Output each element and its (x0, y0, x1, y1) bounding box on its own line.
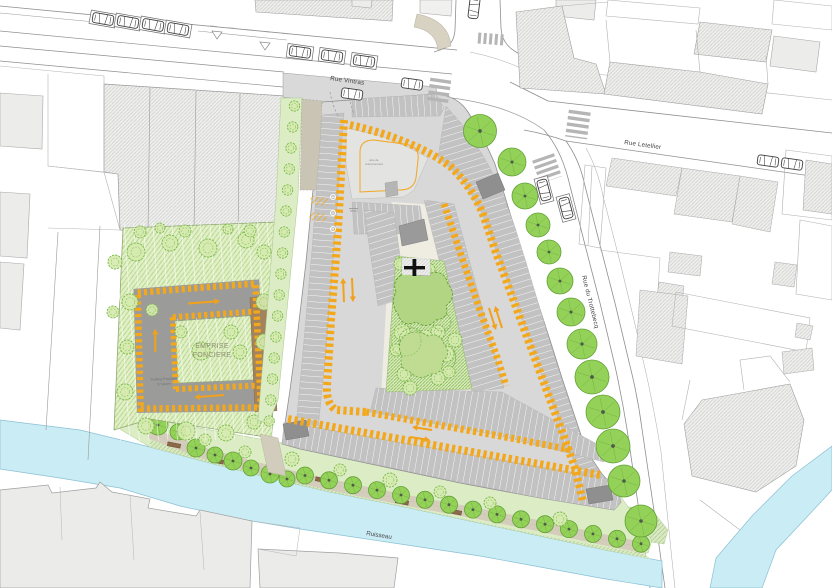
svg-text:EMPRISE: EMPRISE (195, 343, 229, 350)
svg-text:57 places: 57 places (157, 382, 171, 387)
svg-text:retournement: retournement (365, 162, 383, 166)
svg-text:FONCIERE: FONCIERE (193, 352, 232, 359)
